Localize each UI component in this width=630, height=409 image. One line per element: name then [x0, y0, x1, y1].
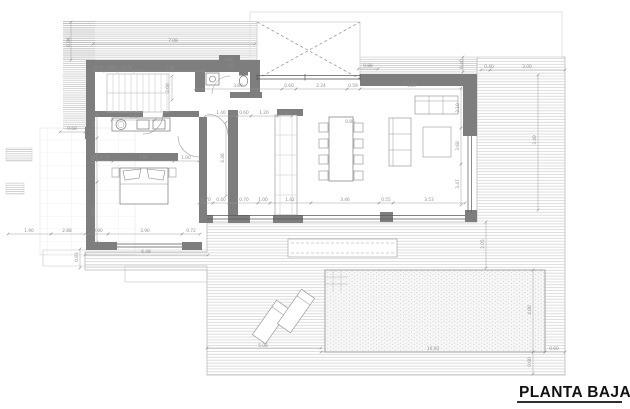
bedroom-door-arc: [178, 136, 199, 157]
dimension-label: 4.00: [527, 305, 533, 315]
dimension-label: 0.60: [224, 57, 234, 63]
dimension-label: 0.86: [345, 119, 355, 125]
dimension-label: 0.60: [280, 110, 290, 116]
east-glazing: [468, 136, 472, 212]
dimension-label: 0.60: [239, 110, 249, 116]
dining-chair: [354, 123, 363, 132]
bedroom-furniture: [112, 168, 176, 204]
dimension-label: 3.40: [532, 135, 538, 145]
dimension-label: 2.10: [455, 103, 461, 113]
dimension-label: 2.88: [62, 228, 72, 234]
sofa-top: [415, 96, 458, 114]
dining-chair: [319, 123, 328, 132]
bed: [120, 168, 168, 204]
dimension-label: 0.59: [348, 83, 358, 89]
wc-sink: [206, 73, 219, 85]
dimension-label: 5.08: [258, 343, 268, 349]
dining-chair: [319, 171, 328, 180]
dimension-label: 0.70: [239, 197, 249, 203]
dimension-label: 0.40: [216, 197, 226, 203]
dimension-label: 7.08: [168, 38, 178, 44]
dimension-label: 2.24: [316, 83, 326, 89]
dining-chair: [319, 139, 328, 148]
staircase: [107, 74, 169, 112]
dimension-label: 1.20: [259, 110, 269, 116]
dimension-label: 0.60: [284, 83, 294, 89]
dimension-label: 5.87: [407, 83, 417, 89]
deck-bench: [288, 239, 397, 257]
corridor-east-wall: [228, 110, 238, 217]
dimension-label: 0.96: [66, 37, 72, 47]
dimension-label: 3.60: [91, 207, 97, 217]
dimension-label: 3.68: [455, 141, 461, 151]
dimension-label: 1.00: [258, 197, 268, 203]
dimension-label: 0.72: [186, 228, 196, 234]
exterior-hatch-block: [6, 148, 32, 161]
dimension-label: 0.40: [459, 59, 465, 69]
dimension-label: 3.53: [424, 197, 434, 203]
dimension-label: 0.70: [100, 155, 110, 161]
living-room-furniture: [389, 96, 458, 166]
dimension-label: 0.60: [549, 346, 559, 352]
dimension-label: 15: [228, 63, 234, 69]
dimension-label: 3.00: [522, 64, 532, 70]
dimension-label: 0.60: [527, 357, 533, 367]
dimension-label: 1.90: [24, 228, 34, 234]
bench-outline: [288, 239, 397, 257]
dimension-label: 3.90: [140, 228, 150, 234]
dimension-label: 2.05: [480, 239, 486, 249]
dimension-label: 0.88: [363, 63, 373, 69]
wc-west-wall: [195, 63, 205, 92]
wc-fixtures: [206, 72, 248, 94]
dimension-label: 1.40: [216, 110, 226, 116]
dimension-label: 2.68: [138, 155, 148, 161]
floor-plan-drawing: 7.080.960.450.950.781.802.080.60153.800.…: [0, 0, 630, 409]
dimension-label: 0.45: [94, 65, 104, 71]
dimension-label: 3.80: [233, 83, 243, 89]
dimension-label: 6.48: [141, 249, 151, 255]
bedroom-south-pier-west: [88, 242, 117, 250]
dimension-label: 4.46: [220, 153, 226, 163]
dimension-label: 0.55: [381, 197, 391, 203]
dimension-label: 3.46: [340, 197, 350, 203]
dining-table: [329, 117, 353, 181]
dining-chair: [319, 155, 328, 164]
coffee-table: [423, 127, 451, 157]
dimension-label: 1.80: [129, 114, 139, 120]
wc-east-wall: [250, 60, 260, 92]
dimension-label: 0.90: [93, 228, 103, 234]
east-wall: [463, 86, 477, 136]
dimension-label: 0.40: [484, 64, 494, 70]
dimension-label: 0.70: [201, 197, 211, 203]
bedroom-south-pier-east: [182, 242, 202, 250]
dining-chair: [354, 171, 363, 180]
drawing-title-block: PLANTA BAJA: [517, 384, 630, 402]
south-column: [380, 212, 393, 222]
dimension-label: 1.91: [91, 121, 97, 131]
corridor-door-arc: [207, 114, 228, 135]
nightstand: [169, 168, 176, 177]
dimension-label: 0.68: [67, 126, 77, 132]
floor-plan-page: 7.080.960.450.950.781.802.080.60153.800.…: [0, 0, 630, 409]
dimension-label: 2.08: [165, 83, 171, 93]
toilet-tank: [239, 72, 248, 76]
dimension-label: 2.06: [91, 155, 97, 165]
deck-east: [477, 57, 565, 222]
dimension-label: 10.00: [427, 346, 440, 352]
dining-set: [319, 117, 363, 181]
southeast-corner-column: [465, 210, 477, 222]
plan-title: PLANTA BAJA: [519, 384, 630, 401]
sofa-side: [389, 118, 411, 166]
dimension-label: 3.47: [455, 179, 461, 189]
swimming-pool: [325, 270, 545, 352]
wc-south-wall: [230, 92, 262, 98]
dimension-label: 1.42: [285, 197, 295, 203]
exterior-hatch-block: [6, 183, 24, 194]
dimension-label: 0.95: [107, 65, 117, 71]
north-wall-east: [360, 74, 477, 86]
dining-chair: [354, 139, 363, 148]
porch-void: [257, 22, 360, 79]
dimension-label: 1.00: [181, 155, 191, 161]
dining-chair: [354, 155, 363, 164]
dimension-label: 1.80: [165, 65, 175, 71]
pool-basin: [325, 270, 545, 352]
dimension-label: 0.83: [74, 252, 80, 262]
dimension-label: 0.78: [122, 65, 132, 71]
west-wall: [86, 60, 95, 250]
